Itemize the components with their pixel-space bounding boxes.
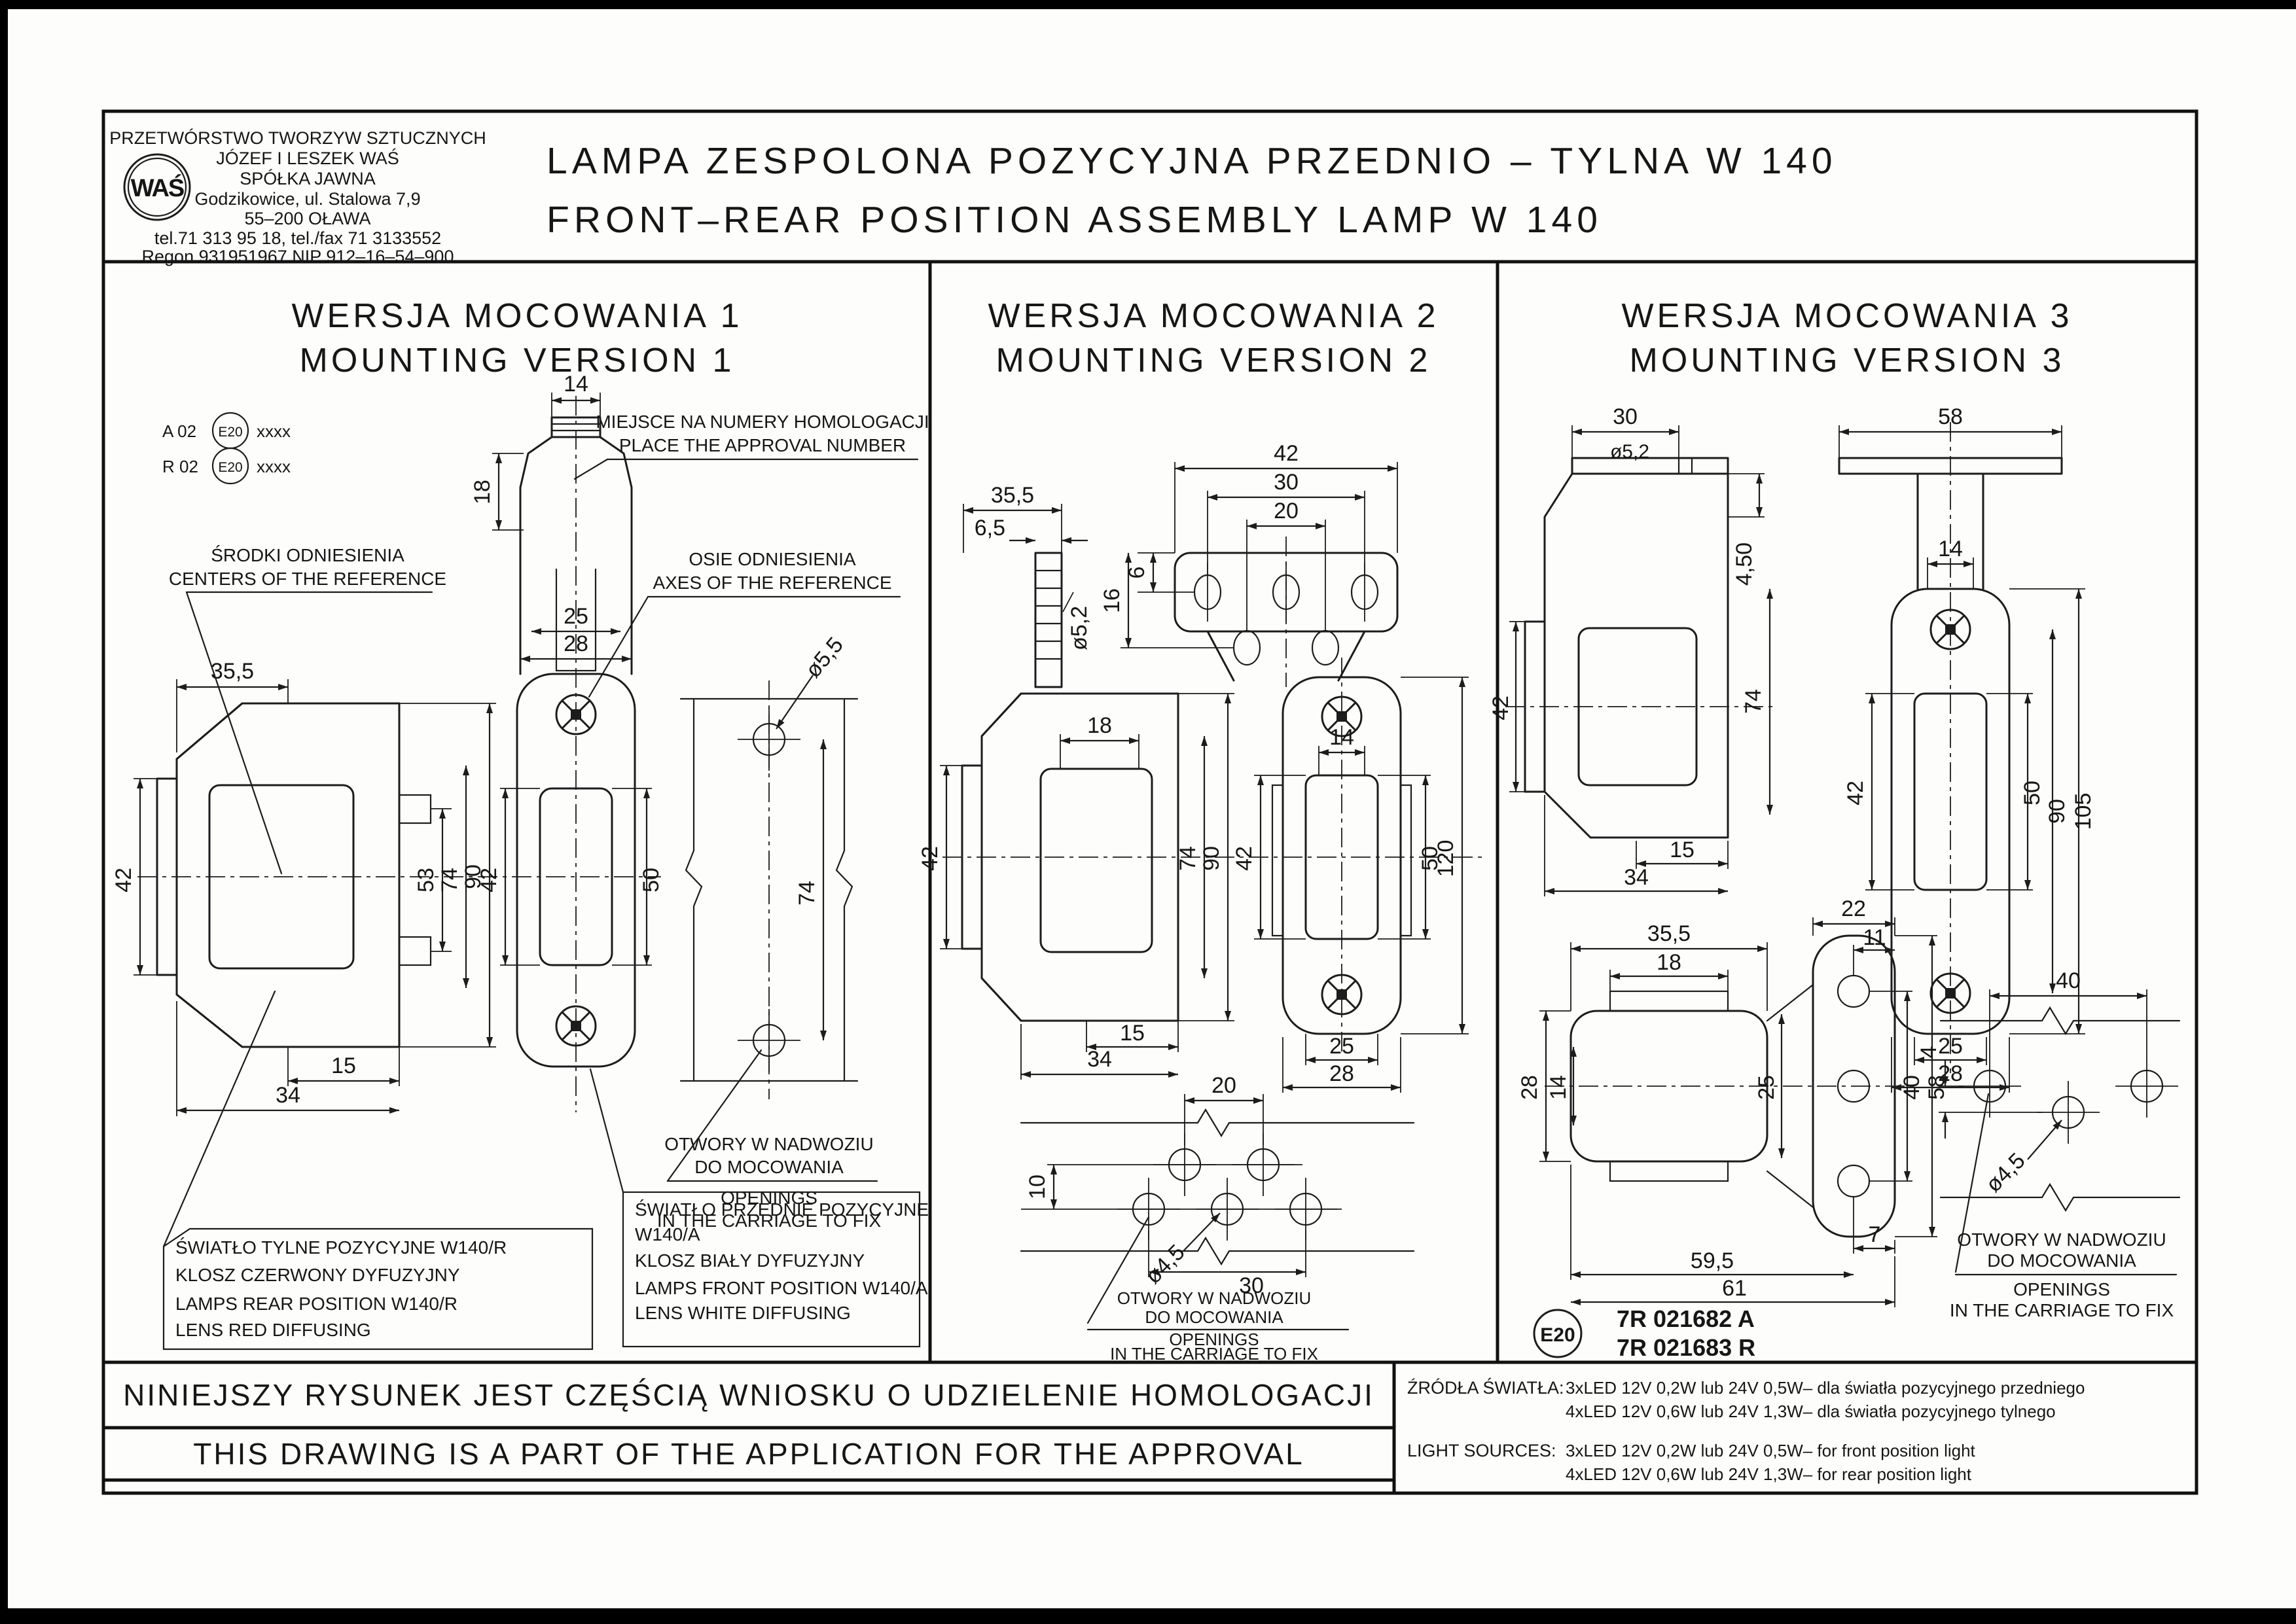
p1-stud-view xyxy=(520,396,632,1112)
p3-dim-74: 74 xyxy=(1741,589,1770,815)
sources-label-pl: ŹRÓDŁA ŚWIATŁA: xyxy=(1407,1377,1564,1398)
front-lamp-line: KLOSZ BIAŁY DYFUZYJNY xyxy=(635,1250,865,1271)
company-line: JÓZEF I LESZEK WAŚ xyxy=(216,147,399,168)
statement-en: THIS DRAWING IS A PART OF THE APPLICATIO… xyxy=(193,1437,1304,1471)
dim-label: 25 xyxy=(1754,1075,1779,1100)
p3-approval-numbers: E20 7R 021682 A 7R 021683 R xyxy=(1534,1305,1755,1361)
dim-label: 10 xyxy=(1025,1174,1050,1199)
p2-note-openings: OTWORY W NADWOZIU DO MOCOWANIA OPENINGS … xyxy=(1088,1217,1348,1364)
p1-mark-a-x: xxxx xyxy=(257,421,291,441)
rear-lamp-line: LENS RED DIFFUSING xyxy=(175,1320,371,1340)
dim-label: 42 xyxy=(111,868,136,892)
dim-label: 50 xyxy=(2020,781,2045,805)
dim-label: 42 xyxy=(1843,781,1868,805)
p2-dim-10: 10 xyxy=(1025,1165,1054,1209)
p3-dim-7: 7 xyxy=(1854,1197,1895,1254)
title-block: WAŚ PRZETWÓRSTWO TWORZYW SZTUCZNYCH JÓZE… xyxy=(109,128,1837,266)
p1-axes-pl: OSIE ODNIESIENIA xyxy=(689,549,855,569)
e20-icon: E20 xyxy=(218,460,242,475)
dim-label: 74 xyxy=(437,868,462,892)
approval-number-r: 7R 021683 R xyxy=(1617,1334,1755,1361)
approval-number-a: 7R 021682 A xyxy=(1617,1305,1755,1332)
dim-label: 40 xyxy=(1899,1075,1924,1100)
openings-line: DO MOCOWANIA xyxy=(1987,1250,2136,1271)
openings-line: OTWORY W NADWOZIU xyxy=(1117,1288,1312,1308)
dim-label: 42 xyxy=(1488,696,1513,720)
panel-mounting-version-3: WERSJA MOCOWANIA 3 MOUNTING VERSION 3 30… xyxy=(1488,297,2179,1361)
p1-homolog-en: PLACE THE APPROVAL NUMBER xyxy=(619,435,906,455)
sources-value: 4xLED 12V 0,6W lub 24V 1,3W– dla światła… xyxy=(1566,1402,2056,1421)
p1-note-centers: ŚRODKI ODNIESIENIA CENTERS OF THE REFERE… xyxy=(169,544,446,874)
light-sources: ŹRÓDŁA ŚWIATŁA: 3xLED 12V 0,2W lub 24V 0… xyxy=(1407,1377,2085,1484)
front-lamp-line: W140/A xyxy=(635,1224,700,1244)
drawing-canvas: WAŚ PRZETWÓRSTWO TWORZYW SZTUCZNYCH JÓZE… xyxy=(0,0,2296,1624)
dim-label: 15 xyxy=(331,1053,356,1078)
p3-header-pl: WERSJA MOCOWANIA 3 xyxy=(1621,297,2072,335)
dim-label: 42 xyxy=(1232,846,1257,871)
dim-label: 74 xyxy=(1175,846,1200,871)
p1-mark-r: R 02 xyxy=(162,457,198,476)
p3-dim-14b: 14 xyxy=(1546,1047,1573,1125)
dim-label: 74 xyxy=(1741,689,1766,714)
p1-side-view xyxy=(157,703,431,1047)
p1-approval-marks: A 02 E20 xxxx R 02 E20 xxxx xyxy=(162,413,291,484)
dim-label: ø4,5 xyxy=(1141,1240,1190,1289)
sources-value: 4xLED 12V 0,6W lub 24V 1,3W– for rear po… xyxy=(1566,1464,1972,1484)
dim-label: 18 xyxy=(1087,713,1112,738)
dim-label: 35,5 xyxy=(991,483,1034,508)
p2-dim-16: 16 xyxy=(1100,553,1234,648)
p3-dim-50: 50 xyxy=(1986,694,2045,890)
rear-lamp-line: LAMPS REAR POSITION W140/R xyxy=(175,1294,457,1314)
dim-label: 58 xyxy=(1938,404,1963,429)
p1-openings-detail: 74 ø5,5 OTWORY W NADWOZIU DO MOCOWANIA O… xyxy=(657,633,882,1231)
title-line-en: FRONT–REAR POSITION ASSEMBLY LAMP W 140 xyxy=(547,199,1602,241)
p2-plate-top-view xyxy=(1175,537,1397,687)
p3-dim-18: 18 xyxy=(1610,950,1728,991)
dim-label: 61 xyxy=(1722,1276,1747,1301)
p3-dim-59_5: 59,5 xyxy=(1571,1165,1854,1280)
dim-label: 7 xyxy=(1869,1222,1881,1247)
logo-text: WAŚ xyxy=(131,173,184,202)
rear-lamp-line: KLOSZ CZERWONY DYFUZYJNY xyxy=(175,1265,460,1285)
dim-label: 15 xyxy=(1120,1021,1145,1046)
dim-label: 28 xyxy=(1329,1061,1354,1086)
p2-openings-detail: 20 30 10 ø4,5 OTWORY W NADWOZIU DO MOCOW… xyxy=(1021,1073,1414,1364)
front-lamp-line: LAMPS FRONT POSITION W140/A xyxy=(635,1278,928,1298)
p2-dim-18: 18 xyxy=(1060,713,1139,769)
openings-line: IN THE CARRIAGE TO FIX xyxy=(1110,1344,1318,1364)
openings-line: OPENINGS xyxy=(2013,1279,2110,1299)
p1-mark-a: A 02 xyxy=(162,421,196,441)
p1-label-rear-lamp: ŚWIATŁO TYLNE POZYCYJNE W140/R KLOSZ CZE… xyxy=(164,991,592,1349)
dim-label: 105 xyxy=(2071,793,2096,830)
panel-mounting-version-2: WERSJA MOCOWANIA 2 MOUNTING VERSION 2 42 xyxy=(918,297,1486,1364)
dim-label: 90 xyxy=(2045,799,2070,824)
p3-side-view: 30 ø5,2 4,50 42 74 xyxy=(1488,404,1774,896)
rear-lamp-line: ŚWIATŁO TYLNE POZYCYJNE W140/R xyxy=(175,1237,507,1258)
p1-dim-28: 28 xyxy=(520,631,632,659)
dim-label: ø4,5 xyxy=(1981,1148,2030,1197)
dim-label: 25 xyxy=(1938,1034,1963,1059)
p2-dim-34: 34 xyxy=(1021,1024,1178,1080)
panel-mounting-version-1: WERSJA MOCOWANIA 1 MOUNTING VERSION 1 A … xyxy=(111,297,929,1349)
dim-label: 11 xyxy=(1863,925,1886,950)
p1-dim-74-holes: 74 xyxy=(795,739,823,1040)
company-line: PRZETWÓRSTWO TWORZYW SZTUCZNYCH xyxy=(109,128,486,148)
front-lamp-line: LENS WHITE DIFFUSING xyxy=(635,1303,851,1323)
dim-label: 120 xyxy=(1433,840,1458,877)
company-line: SPÓŁKA JAWNA xyxy=(240,168,376,188)
p1-mark-r-x: xxxx xyxy=(257,457,291,476)
p1-dim-dia5_5: ø5,5 xyxy=(776,633,848,729)
dim-label: 90 xyxy=(1199,846,1224,871)
dim-label: 25 xyxy=(564,604,588,629)
dim-label: 90 xyxy=(461,864,486,889)
p2-dim-6: 6 xyxy=(1124,553,1194,592)
p1-label-front-lamp: ŚWIATŁO PRZEDNIE POZYCYJNE W140/A KLOSZ … xyxy=(590,1069,929,1347)
front-lamp-line: ŚWIATŁO PRZEDNIE POZYCYJNE xyxy=(635,1199,929,1220)
dim-label: 20 xyxy=(1274,499,1299,523)
p1-axes-en: AXES OF THE REFERENCE xyxy=(653,573,891,593)
dim-label: 28 xyxy=(1517,1075,1542,1100)
p2-dim-6_5: 6,5 xyxy=(975,516,1088,540)
p2-dim-dia5_2: ø5,2 xyxy=(1063,592,1092,650)
dim-label: 34 xyxy=(1087,1047,1112,1072)
p1-dim-25: 25 xyxy=(531,604,620,631)
dim-label: 4 xyxy=(1916,1046,1941,1059)
dim-label: 34 xyxy=(1624,865,1649,890)
dim-label: 18 xyxy=(470,480,495,504)
p3-dim-11: 11 xyxy=(1854,925,1895,976)
p2-dim-25: 25 xyxy=(1306,1034,1378,1065)
p2-dim-20-holes: 20 xyxy=(1185,1073,1263,1145)
e20-icon: E20 xyxy=(1540,1324,1575,1346)
footer: NINIEJSZY RYSUNEK JEST CZĘŚCIĄ WNIOSKU O… xyxy=(123,1377,2085,1484)
p2-header-pl: WERSJA MOCOWANIA 2 xyxy=(988,297,1439,335)
p3-dim-90: 90 xyxy=(2045,629,2070,993)
p1-homolog-pl: MIEJSCE NA NUMERY HOMOLOGACJI xyxy=(596,412,929,432)
dim-label: 30 xyxy=(1613,404,1638,429)
sources-value: 3xLED 12V 0,2W lub 24V 0,5W– for front p… xyxy=(1566,1441,1976,1460)
dim-label: 34 xyxy=(276,1083,300,1108)
dim-label: 25 xyxy=(1329,1034,1354,1059)
p2-plate-edge-view: 35,5 6,5 ø5,2 xyxy=(963,483,1092,687)
p3-dim-15: 15 xyxy=(1636,838,1728,869)
e20-icon: E20 xyxy=(218,425,242,440)
p3-dim-4_50: 4,50 xyxy=(1728,474,1765,586)
dim-label: 18 xyxy=(1657,950,1681,975)
dim-label: 4,50 xyxy=(1732,542,1757,586)
company-logo: WAŚ xyxy=(124,154,190,220)
dim-label: 15 xyxy=(1670,838,1695,862)
statement-pl: NINIEJSZY RYSUNEK JEST CZĘŚCIĄ WNIOSKU O… xyxy=(123,1378,1374,1412)
dim-label: 30 xyxy=(1274,470,1299,495)
p3-bracket-detail: 22 11 35,5 18 xyxy=(1517,896,1949,1307)
dim-label: 20 xyxy=(1211,1073,1236,1098)
dim-label: 40 xyxy=(2056,968,2081,993)
p3-openings-detail: 40 4 ø4,5 OTWORY W NADWOZIU DO MOCOWANIA… xyxy=(1916,968,2179,1320)
p1-note-axes: OSIE ODNIESIENIA AXES OF THE REFERENCE xyxy=(589,549,900,697)
dim-label: 14 xyxy=(1938,537,1963,561)
dim-label: 14 xyxy=(1546,1075,1571,1100)
p1-dim-15: 15 xyxy=(288,1047,399,1086)
dim-label: ø5,2 xyxy=(1610,441,1649,463)
p1-centers-en: CENTERS OF THE REFERENCE xyxy=(169,569,446,589)
p3-dim-42-front: 42 xyxy=(1843,694,1914,890)
dim-label: ø5,5 xyxy=(800,633,848,683)
dim-label: 35,5 xyxy=(211,659,254,684)
openings-line: OTWORY W NADWOZIU xyxy=(1957,1229,2166,1250)
dim-label: 16 xyxy=(1100,588,1124,613)
company-line: 55–200 OŁAWA xyxy=(244,209,370,228)
p1-dim-35_5: 35,5 xyxy=(177,659,288,752)
p3-dim-40-holes: 40 xyxy=(1990,968,2147,1055)
dim-label: ø5,2 xyxy=(1067,606,1092,650)
dim-label: 28 xyxy=(564,631,588,656)
p2-header-en: MOUNTING VERSION 2 xyxy=(996,342,1431,380)
dim-label: 42 xyxy=(1274,441,1299,466)
sheet-title: LAMPA ZESPOLONA POZYCYJNA PRZEDNIO – TYL… xyxy=(547,140,1837,241)
openings-line: OTWORY W NADWOZIU xyxy=(664,1134,873,1154)
dim-label: 53 xyxy=(414,868,439,892)
dim-label: 6,5 xyxy=(975,516,1005,540)
dim-label: 14 xyxy=(1329,725,1354,750)
dim-label: 22 xyxy=(1841,896,1866,921)
company-line: Regon 931951967 NIP 912–16–54–900 xyxy=(142,247,454,266)
p1-dim-18: 18 xyxy=(470,453,524,530)
drawing-sheet: WAŚ PRZETWÓRSTWO TWORZYW SZTUCZNYCH JÓZE… xyxy=(0,0,2296,1624)
dim-label: 14 xyxy=(564,372,588,397)
p1-header-en: MOUNTING VERSION 1 xyxy=(300,342,735,380)
p1-centers-pl: ŚRODKI ODNIESIENIA xyxy=(211,544,404,565)
dim-label: 35,5 xyxy=(1647,921,1691,946)
dim-label: 50 xyxy=(639,868,664,892)
p1-header-pl: WERSJA MOCOWANIA 1 xyxy=(291,297,742,335)
sources-value: 3xLED 12V 0,2W lub 24V 0,5W– dla światła… xyxy=(1566,1378,2085,1398)
dim-label: 42 xyxy=(918,846,942,871)
company-line: tel.71 313 95 18, tel./fax 71 3133552 xyxy=(154,228,441,248)
p3-header-en: MOUNTING VERSION 3 xyxy=(1630,342,2065,380)
openings-line: DO MOCOWANIA xyxy=(1145,1307,1283,1327)
sources-label-en: LIGHT SOURCES: xyxy=(1407,1441,1556,1460)
openings-line: DO MOCOWANIA xyxy=(694,1157,844,1177)
p3-dim-dia5_2: ø5,2 xyxy=(1610,441,1649,463)
dim-label: 59,5 xyxy=(1691,1248,1734,1273)
title-line-pl: LAMPA ZESPOLONA POZYCYJNA PRZEDNIO – TYL… xyxy=(547,140,1837,182)
openings-line: IN THE CARRIAGE TO FIX xyxy=(1950,1300,2174,1320)
company-line: Godzikowice, ul. Stalowa 7,9 xyxy=(194,189,420,209)
dim-label: 74 xyxy=(795,881,819,906)
